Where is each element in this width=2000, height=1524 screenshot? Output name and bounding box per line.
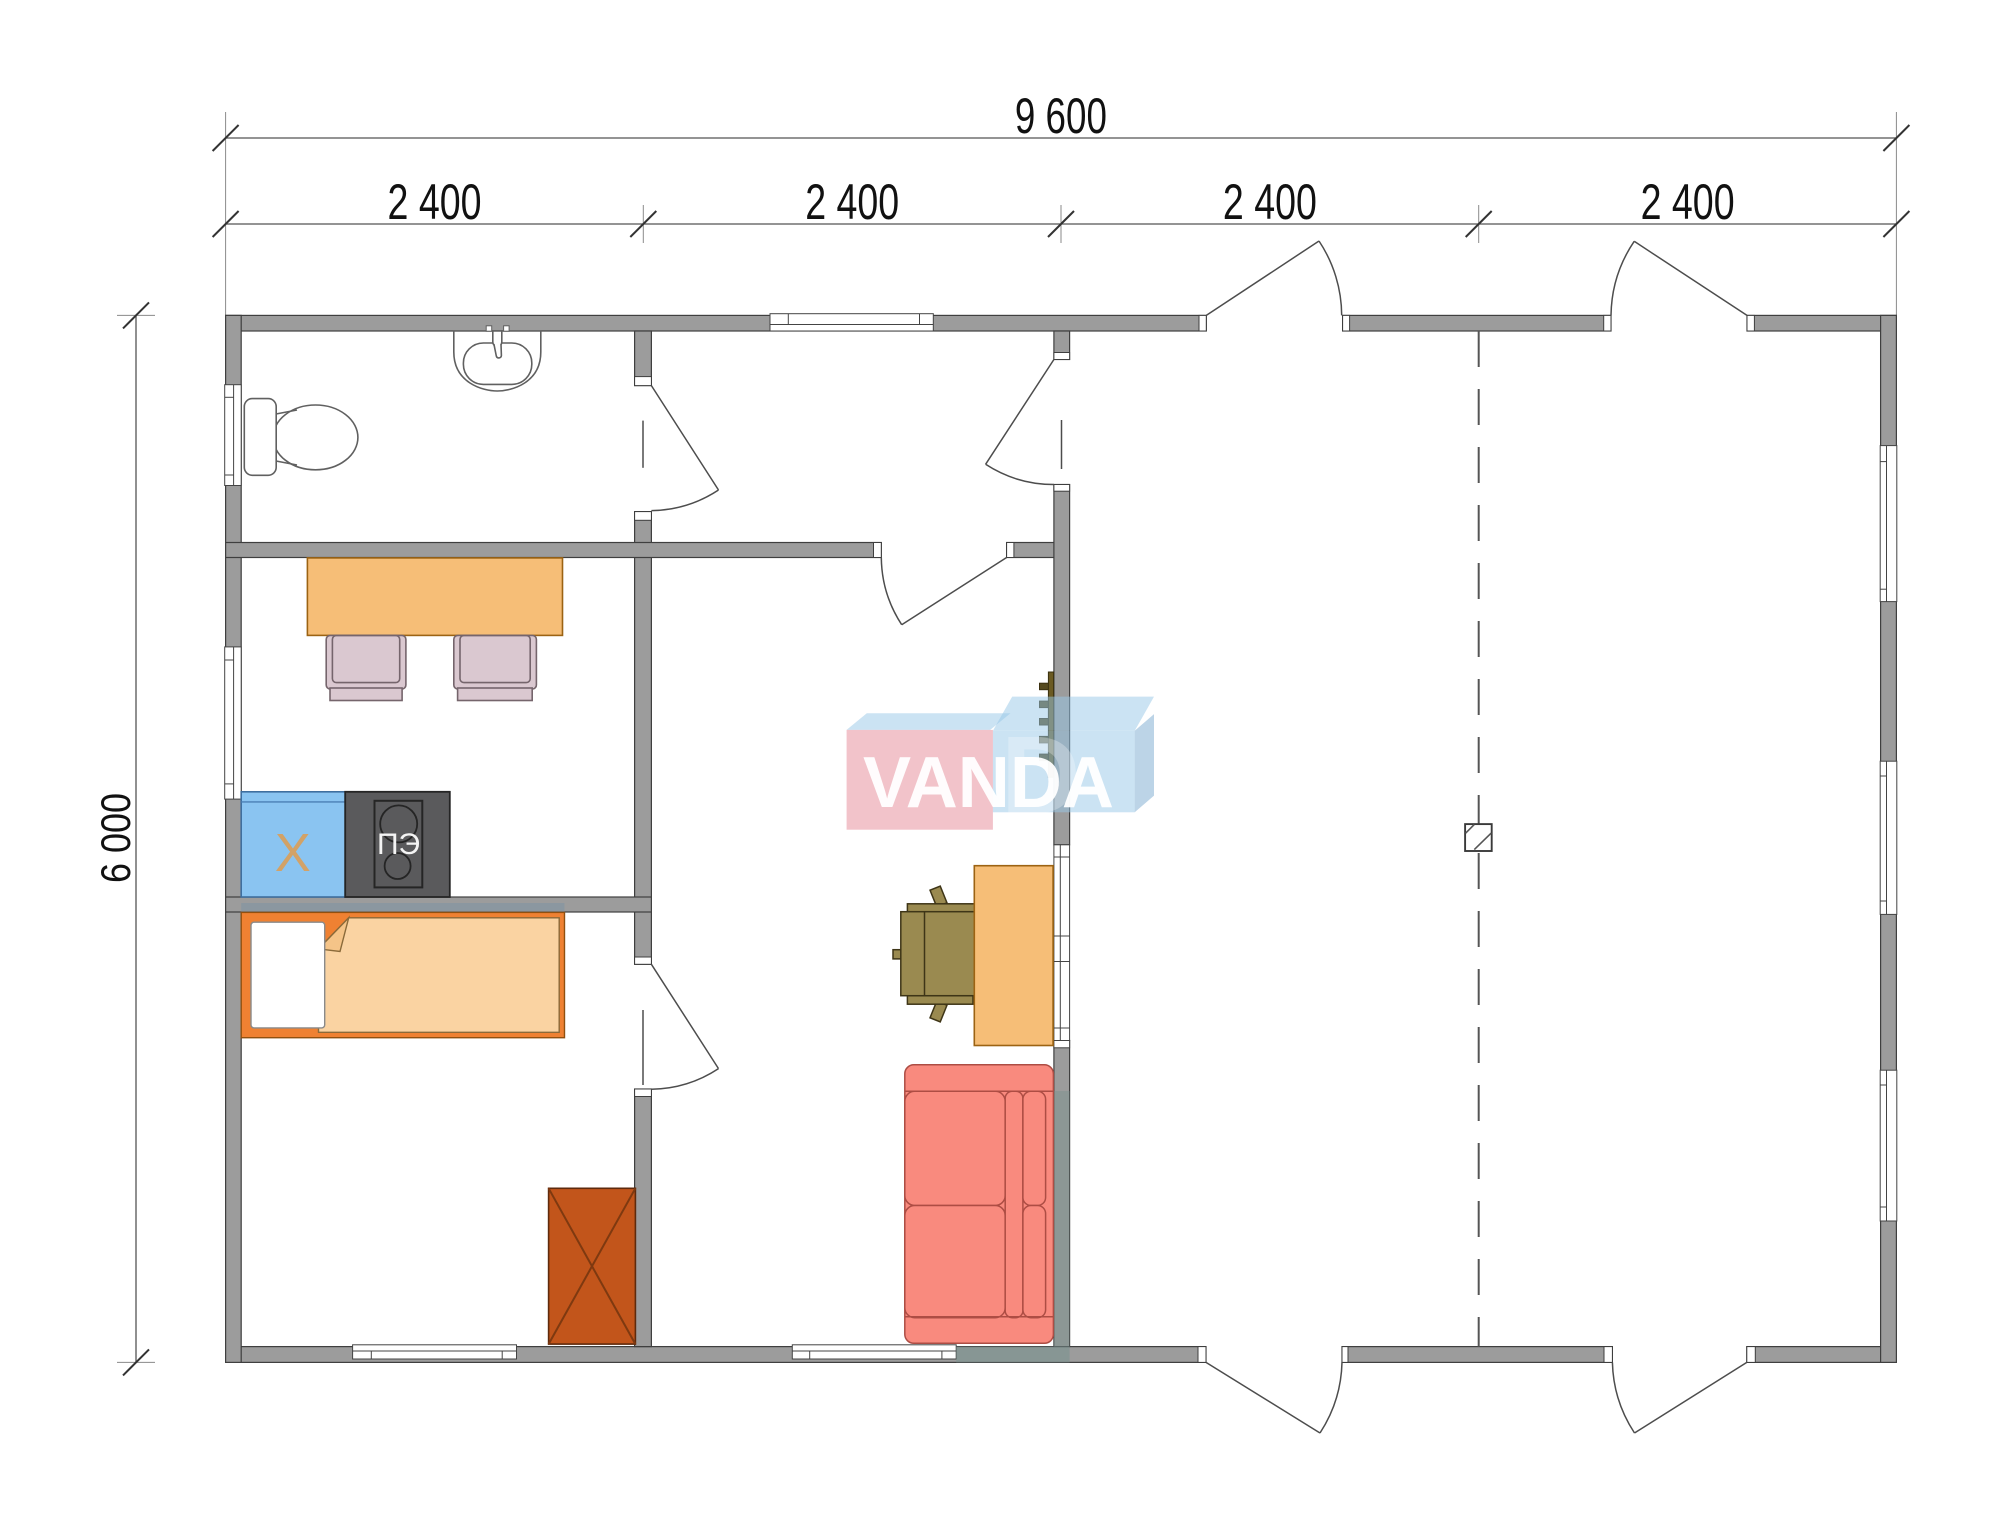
- svg-text:2 400: 2 400: [388, 174, 482, 230]
- svg-text:X: X: [275, 823, 311, 883]
- svg-text:2 400: 2 400: [1641, 174, 1735, 230]
- svg-text:9 600: 9 600: [1015, 88, 1107, 144]
- svg-text:2 400: 2 400: [805, 174, 899, 230]
- svg-text:6 000: 6 000: [92, 793, 139, 883]
- svg-text:VANDA: VANDA: [863, 743, 1114, 823]
- svg-text:ПЭ: ПЭ: [377, 828, 420, 861]
- svg-text:2 400: 2 400: [1223, 174, 1317, 230]
